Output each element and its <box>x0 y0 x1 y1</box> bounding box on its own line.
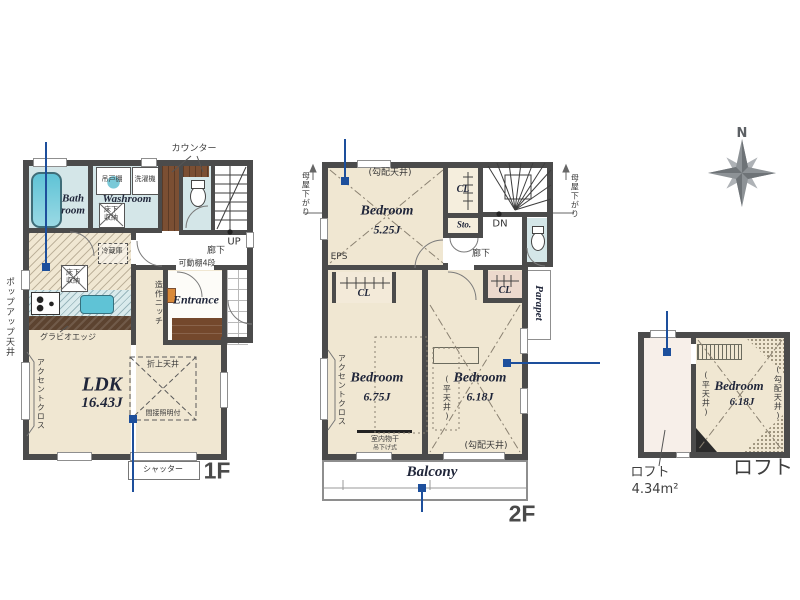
f2-label-bedroom3-size: 6.18J <box>467 391 494 404</box>
f2-label-hanging-type: 吊下げ式 <box>373 446 397 453</box>
loft-label-bedroom: Bedroom <box>714 379 763 393</box>
f1-stove <box>31 292 60 315</box>
f1-label-popup-ceiling: ポップアップ天井 <box>3 277 13 357</box>
loft-area-size: 4.34m² <box>632 483 679 497</box>
f1-genkan-step <box>172 318 222 342</box>
f2-window <box>320 358 328 420</box>
f2-label-sto: Sto. <box>457 220 471 229</box>
f2-window <box>443 452 505 460</box>
f2-label-bedroom1: Bedroom <box>361 205 414 220</box>
f1-window <box>220 372 228 408</box>
f1-wall <box>23 228 162 233</box>
f2-wall <box>392 272 396 303</box>
f2-toilet-bowl <box>531 232 545 251</box>
loft-opening-bottom <box>676 452 690 458</box>
f1-floor-label: 1F <box>204 458 231 485</box>
loft-window <box>650 330 676 338</box>
loft-label-flat-ceiling: (平天井) <box>701 371 710 418</box>
loft-wall <box>784 332 790 458</box>
loft-wall <box>638 332 644 458</box>
compass-shade <box>736 173 742 207</box>
f2-wall <box>478 162 483 238</box>
f1-porch-tiles <box>227 268 248 345</box>
f1-label-counter: カウンター <box>171 145 216 155</box>
f1-label-underfloor-storage-kitchen: 床下収納 <box>65 269 81 284</box>
f1-counter-strip <box>162 163 179 231</box>
f1-door-opening <box>131 240 136 264</box>
loft-plan-label: ロフト <box>733 456 793 478</box>
f1-label-washroom: Washroom <box>103 194 152 206</box>
f2-wall <box>322 265 448 270</box>
f2-window <box>356 452 392 460</box>
f1-wall <box>179 230 253 235</box>
f1-wall <box>163 340 227 345</box>
f1-wall <box>163 270 168 345</box>
f2-window <box>320 218 328 240</box>
f2-label-hallway: 廊下 <box>472 250 490 260</box>
f1-wall <box>247 160 253 343</box>
f2-wall <box>522 213 527 267</box>
floorplan-canvas: カウンター 吊戸棚 洗濯機 Bath room Washroom 床下収納 UP… <box>0 0 800 600</box>
compass-north-label: N <box>737 127 748 141</box>
f1-wall <box>179 160 183 233</box>
f2-label-bedroom2-size: 6.75J <box>364 391 391 404</box>
f1-label-shutter: シャッター <box>143 466 183 475</box>
f1-counter-front-edge <box>28 316 131 330</box>
compass-main-star <box>708 139 776 207</box>
f2-label-cl-left: CL <box>358 289 371 300</box>
f2-label-sloped-ceiling-bottom: (勾配天井) <box>464 442 507 452</box>
f2-label-bedroom2: Bedroom <box>351 372 404 387</box>
f2-wall <box>483 212 553 217</box>
f2-label-indoor-drying: 室内物干 <box>371 436 399 444</box>
f1-wall <box>211 160 215 235</box>
f2-toilet-tank <box>532 226 544 234</box>
f2-label-parapet: Parapet <box>532 285 544 320</box>
f1-label-underfloor-storage-washroom: 床下収納 <box>103 206 119 221</box>
f2-indoor-drying-bar <box>357 430 412 433</box>
f2-label-bedroom1-size: 5.25J <box>374 224 401 237</box>
loft-area-name: ロフト <box>630 466 669 480</box>
f2-loft-ladder <box>433 347 479 364</box>
f1-label-gravio-edge: グラビオエッジ <box>40 334 96 343</box>
f2-wall <box>443 213 483 218</box>
f1-wall <box>158 160 162 233</box>
f2-label-flat-ceiling: (平天井) <box>442 375 451 422</box>
f1-window <box>130 452 197 461</box>
f1-label-niche: 造作ニッチ <box>154 281 163 326</box>
f1-label-hallway: 廊下 <box>207 247 225 257</box>
f1-wall <box>222 270 227 345</box>
f1-window <box>141 158 157 167</box>
f1-stairs <box>215 166 247 232</box>
loft-label-bedroom-size: 6.18J <box>730 397 755 409</box>
f2-wall <box>422 270 428 454</box>
f1-sink <box>80 295 114 314</box>
f2-window <box>357 160 391 168</box>
f2-stairs <box>488 163 551 210</box>
f1-label-movable-shelf: 可動棚4段 <box>178 260 215 269</box>
f1-window <box>33 158 67 167</box>
compass-shade <box>742 173 776 179</box>
f2-label-balcony: Balcony <box>407 465 458 481</box>
f1-window <box>21 270 30 290</box>
f1-label-hanging-cupboard: 吊戸棚 <box>102 176 123 184</box>
f2-wall <box>332 272 336 303</box>
f2-window <box>520 328 528 354</box>
f1-label-bathroom: Bath room <box>54 193 92 216</box>
f2-wall <box>483 298 527 303</box>
f2-label-dn: DN <box>492 219 507 230</box>
compass-shade <box>742 139 748 173</box>
f1-label-entrance: Entrance <box>173 294 219 307</box>
f2-wall <box>483 270 488 301</box>
compass-diagonal-star <box>726 157 757 188</box>
f1-window <box>246 232 254 248</box>
loft-opening <box>691 344 696 364</box>
loft-floor <box>644 338 691 452</box>
f2-label-moya-left: 母屋下がり <box>301 172 310 217</box>
compass-rose <box>708 139 776 207</box>
f2-window <box>520 388 528 414</box>
f1-label-washing-machine: 洗濯機 <box>135 176 156 184</box>
f1-label-indirect-lighting: 間接照明付 <box>146 410 181 418</box>
loft-ladder <box>697 344 742 360</box>
f2-label-accent-cloth: アクセントクロス <box>337 354 346 426</box>
f2-wall <box>522 267 528 460</box>
compass-shade <box>708 167 742 173</box>
f1-label-ldk-size: 16.43J <box>81 396 122 412</box>
f1-toilet-bowl <box>190 186 206 207</box>
f2-label-eps: EPS <box>331 253 348 263</box>
f1-toilet-tank <box>191 180 205 189</box>
f2-label-bedroom3: Bedroom <box>454 372 507 387</box>
f1-label-up: UP <box>227 237 240 248</box>
f1-label-coved-ceiling: 折上天井 <box>147 361 179 370</box>
f1-label-refrigerator: 冷蔵庫 <box>102 248 123 256</box>
f2-label-cl-top: CL <box>457 185 470 196</box>
f2-door-opening <box>443 238 448 263</box>
f1-window <box>21 362 30 420</box>
f2-label-moya-right: 母屋下がり <box>570 174 579 219</box>
f2-label-cl-right: CL <box>499 286 512 297</box>
f2-door-opening <box>448 265 474 270</box>
f2-label-sloped-ceiling-top: (勾配天井) <box>368 169 411 179</box>
loft-label-sloped-ceiling: (勾配天井) <box>773 365 782 421</box>
f2-wall <box>443 233 483 238</box>
f1-label-ldk: LDK <box>82 375 122 396</box>
f2-floor-label: 2F <box>509 501 536 528</box>
f1-window <box>57 452 92 461</box>
f1-label-accent-cloth: アクセントクロス <box>36 358 45 430</box>
